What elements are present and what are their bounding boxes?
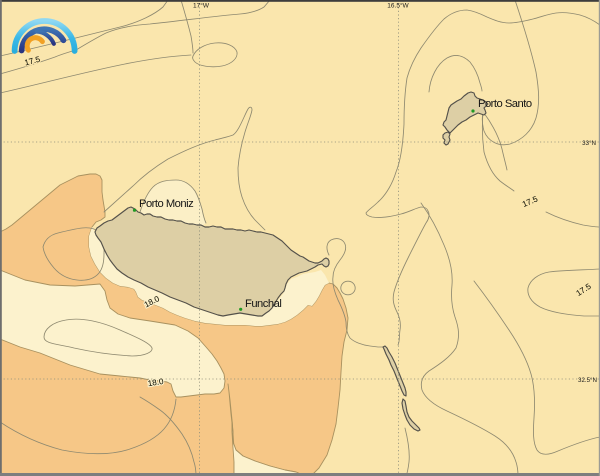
svg-text:16.5°W: 16.5°W xyxy=(387,2,409,10)
svg-text:32.5°N: 32.5°N xyxy=(578,377,597,384)
svg-text:Porto Santo: Porto Santo xyxy=(478,98,532,110)
svg-text:Porto Moniz: Porto Moniz xyxy=(139,198,194,210)
svg-text:33°N: 33°N xyxy=(582,140,596,147)
svg-text:17°W: 17°W xyxy=(193,2,210,10)
svg-text:Funchal: Funchal xyxy=(245,298,281,310)
